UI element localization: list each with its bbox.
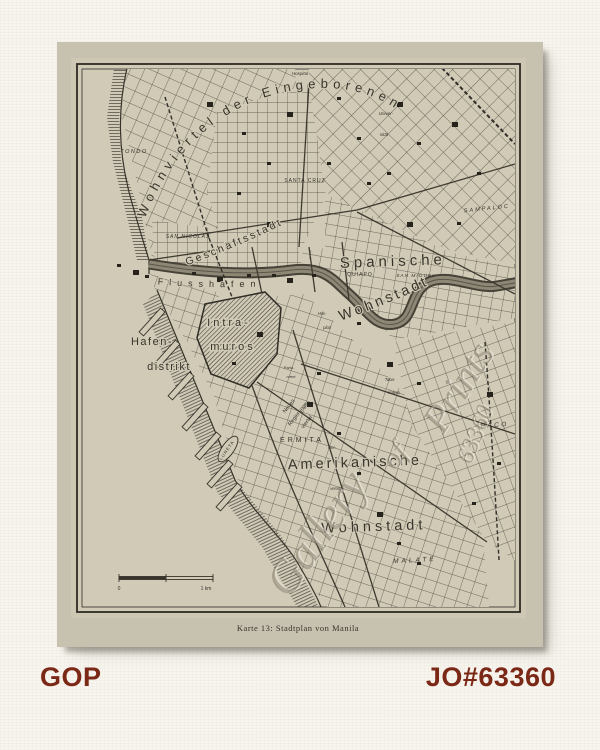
map-label-hafendistrikt-2: distrikt (147, 361, 191, 373)
map-label-scale-zero: 0 (118, 586, 121, 592)
map-label-san-nicolas: SAN NICOLAS (166, 234, 211, 240)
map-label-universitaet-2: sität (380, 132, 389, 137)
map-label-scale-one-km: 1 km (201, 586, 212, 592)
map-label-hospital2-1: Hos- (318, 311, 327, 316)
map-label-ermita: ERMITA (280, 437, 324, 444)
map-label-intramuros-2: muros (210, 341, 256, 353)
map-label-tondo: TONDO (120, 149, 147, 155)
map-label-quiapo: QUIAPO (347, 272, 372, 278)
footer-seller-code: GOP (40, 662, 102, 693)
map-label-hospital2-2: pital (322, 325, 332, 330)
map-label-intramuros-1: Intra- (207, 317, 251, 329)
map-label-hospital: Hospital (292, 71, 309, 76)
map-label-tabakalera-2: kalera (388, 390, 400, 395)
map-label-santa-cruz: SANTA CRUZ (284, 178, 325, 184)
map-scan-page: Wohnviertel der EingeborenenGeschäftssta… (57, 42, 543, 647)
map-label-tabakalera-1: Taba- (385, 377, 396, 382)
map-label-san-miguel: SAN MIGUEL (396, 273, 436, 279)
map-label-hafendistrikt-1: Hafen- (131, 336, 173, 348)
map-label-universitaet2-1: Uni- (328, 445, 336, 450)
footer-order-number: JO#63360 (426, 662, 556, 693)
map-label-map-caption: Karte 13: Stadtplan von Manila (237, 623, 359, 633)
map-label-parlament-2: ment (287, 374, 297, 379)
map-label-parlament-1: Parla- (284, 365, 295, 370)
manila-city-map: Wohnviertel der EingeborenenGeschäftssta… (57, 42, 543, 647)
map-label-universitaet-1: Univer- (379, 111, 394, 116)
